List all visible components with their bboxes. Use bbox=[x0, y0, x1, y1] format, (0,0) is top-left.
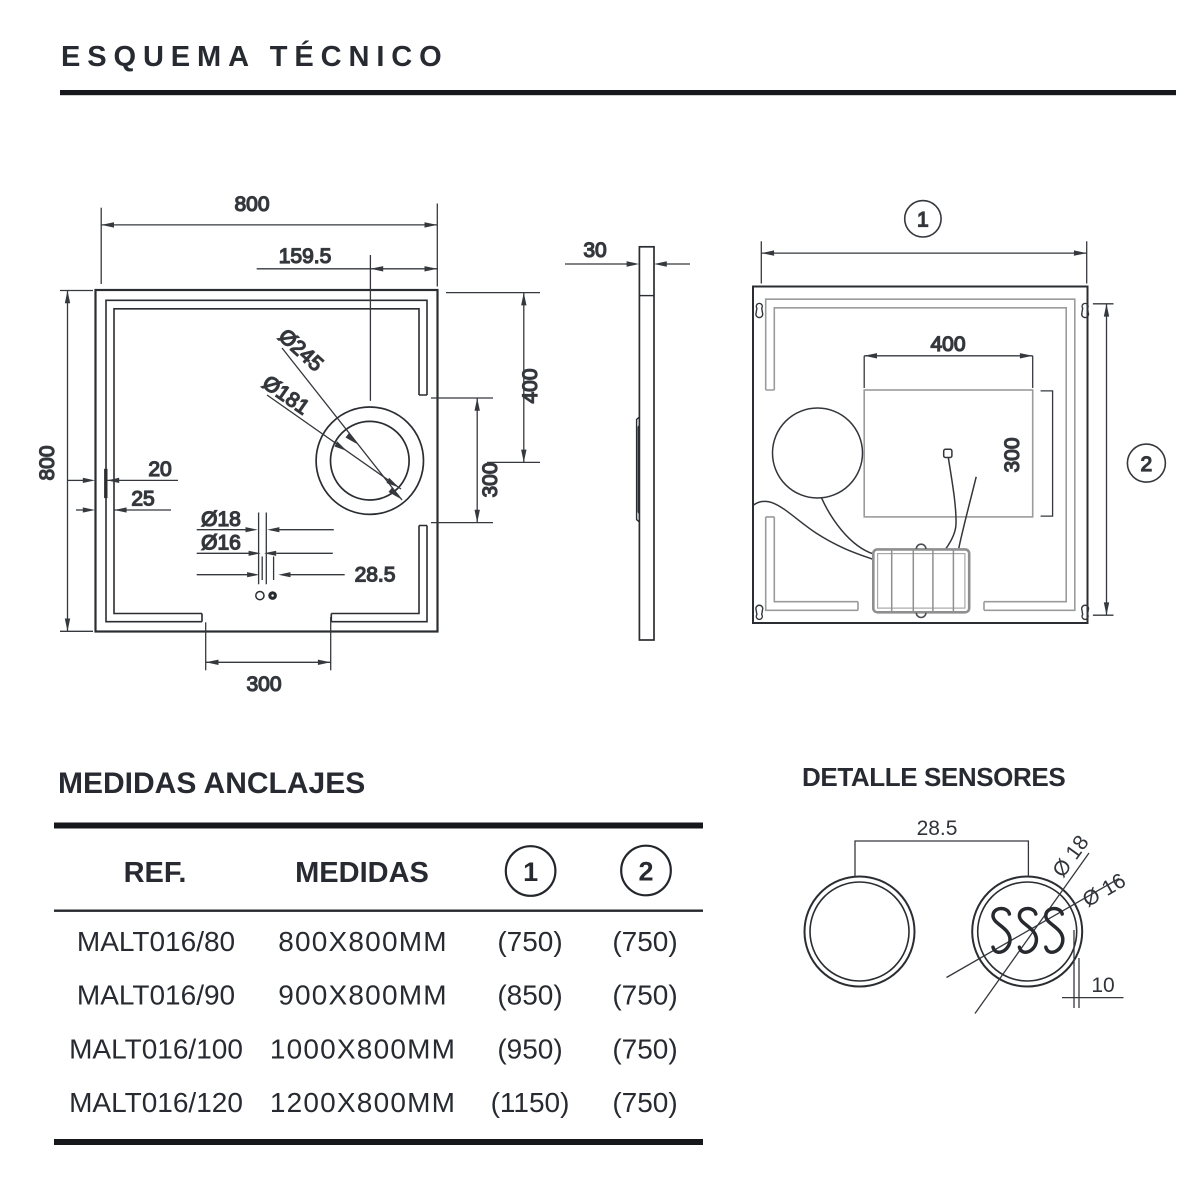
svg-text:800: 800 bbox=[234, 193, 269, 216]
svg-text:159.5: 159.5 bbox=[279, 245, 332, 268]
svg-text:(950): (950) bbox=[497, 1033, 562, 1064]
svg-text:MALT016/120: MALT016/120 bbox=[69, 1087, 243, 1118]
svg-text:800X800MM: 800X800MM bbox=[278, 926, 448, 957]
svg-text:MALT016/80: MALT016/80 bbox=[77, 926, 235, 957]
svg-text:1: 1 bbox=[523, 857, 538, 887]
svg-text:25: 25 bbox=[131, 488, 154, 511]
svg-text:30: 30 bbox=[583, 239, 606, 262]
svg-text:800: 800 bbox=[36, 445, 59, 480]
svg-text:28.5: 28.5 bbox=[355, 564, 396, 587]
svg-text:MEDIDAS ANCLAJES: MEDIDAS ANCLAJES bbox=[58, 767, 365, 800]
svg-text:1: 1 bbox=[917, 209, 929, 232]
svg-text:2: 2 bbox=[1141, 453, 1153, 476]
svg-text:1000X800MM: 1000X800MM bbox=[270, 1033, 456, 1064]
svg-text:900X800MM: 900X800MM bbox=[278, 980, 448, 1011]
svg-text:2: 2 bbox=[638, 857, 653, 887]
svg-text:(750): (750) bbox=[612, 980, 677, 1011]
svg-text:(750): (750) bbox=[497, 926, 562, 957]
svg-text:400: 400 bbox=[930, 333, 965, 356]
svg-text:400: 400 bbox=[519, 368, 542, 403]
svg-text:Ø18: Ø18 bbox=[201, 508, 241, 531]
svg-text:Ø16: Ø16 bbox=[201, 532, 241, 555]
svg-text:MEDIDAS: MEDIDAS bbox=[295, 857, 429, 889]
svg-text:(850): (850) bbox=[497, 980, 562, 1011]
svg-text:MALT016/90: MALT016/90 bbox=[77, 980, 235, 1011]
svg-text:28.5: 28.5 bbox=[917, 817, 958, 840]
svg-text:MALT016/100: MALT016/100 bbox=[69, 1033, 243, 1064]
svg-text:1200X800MM: 1200X800MM bbox=[270, 1087, 456, 1118]
svg-text:300: 300 bbox=[479, 462, 502, 497]
svg-text:(750): (750) bbox=[612, 1087, 677, 1118]
svg-text:REF.: REF. bbox=[124, 857, 187, 889]
svg-text:10: 10 bbox=[1091, 974, 1114, 997]
svg-text:300: 300 bbox=[1001, 437, 1024, 472]
svg-text:DETALLE SENSORES: DETALLE SENSORES bbox=[802, 762, 1065, 792]
svg-text:20: 20 bbox=[148, 458, 171, 481]
svg-text:ESQUEMA TÉCNICO: ESQUEMA TÉCNICO bbox=[61, 39, 449, 73]
svg-text:(750): (750) bbox=[612, 1033, 677, 1064]
svg-text:(1150): (1150) bbox=[491, 1087, 570, 1118]
svg-text:300: 300 bbox=[246, 673, 281, 696]
svg-text:(750): (750) bbox=[612, 926, 677, 957]
